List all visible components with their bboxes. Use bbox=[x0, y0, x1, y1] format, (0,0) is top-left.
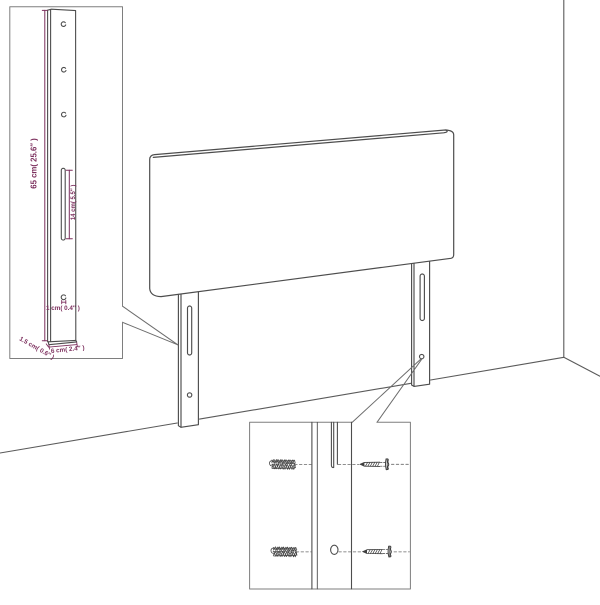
svg-text:65 cm( 25.6″ ): 65 cm( 25.6″ ) bbox=[30, 138, 39, 189]
svg-text:14 cm( 5.5″ ): 14 cm( 5.5″ ) bbox=[71, 185, 77, 221]
svg-text:1 cm( 0.4″ ): 1 cm( 0.4″ ) bbox=[46, 305, 80, 312]
